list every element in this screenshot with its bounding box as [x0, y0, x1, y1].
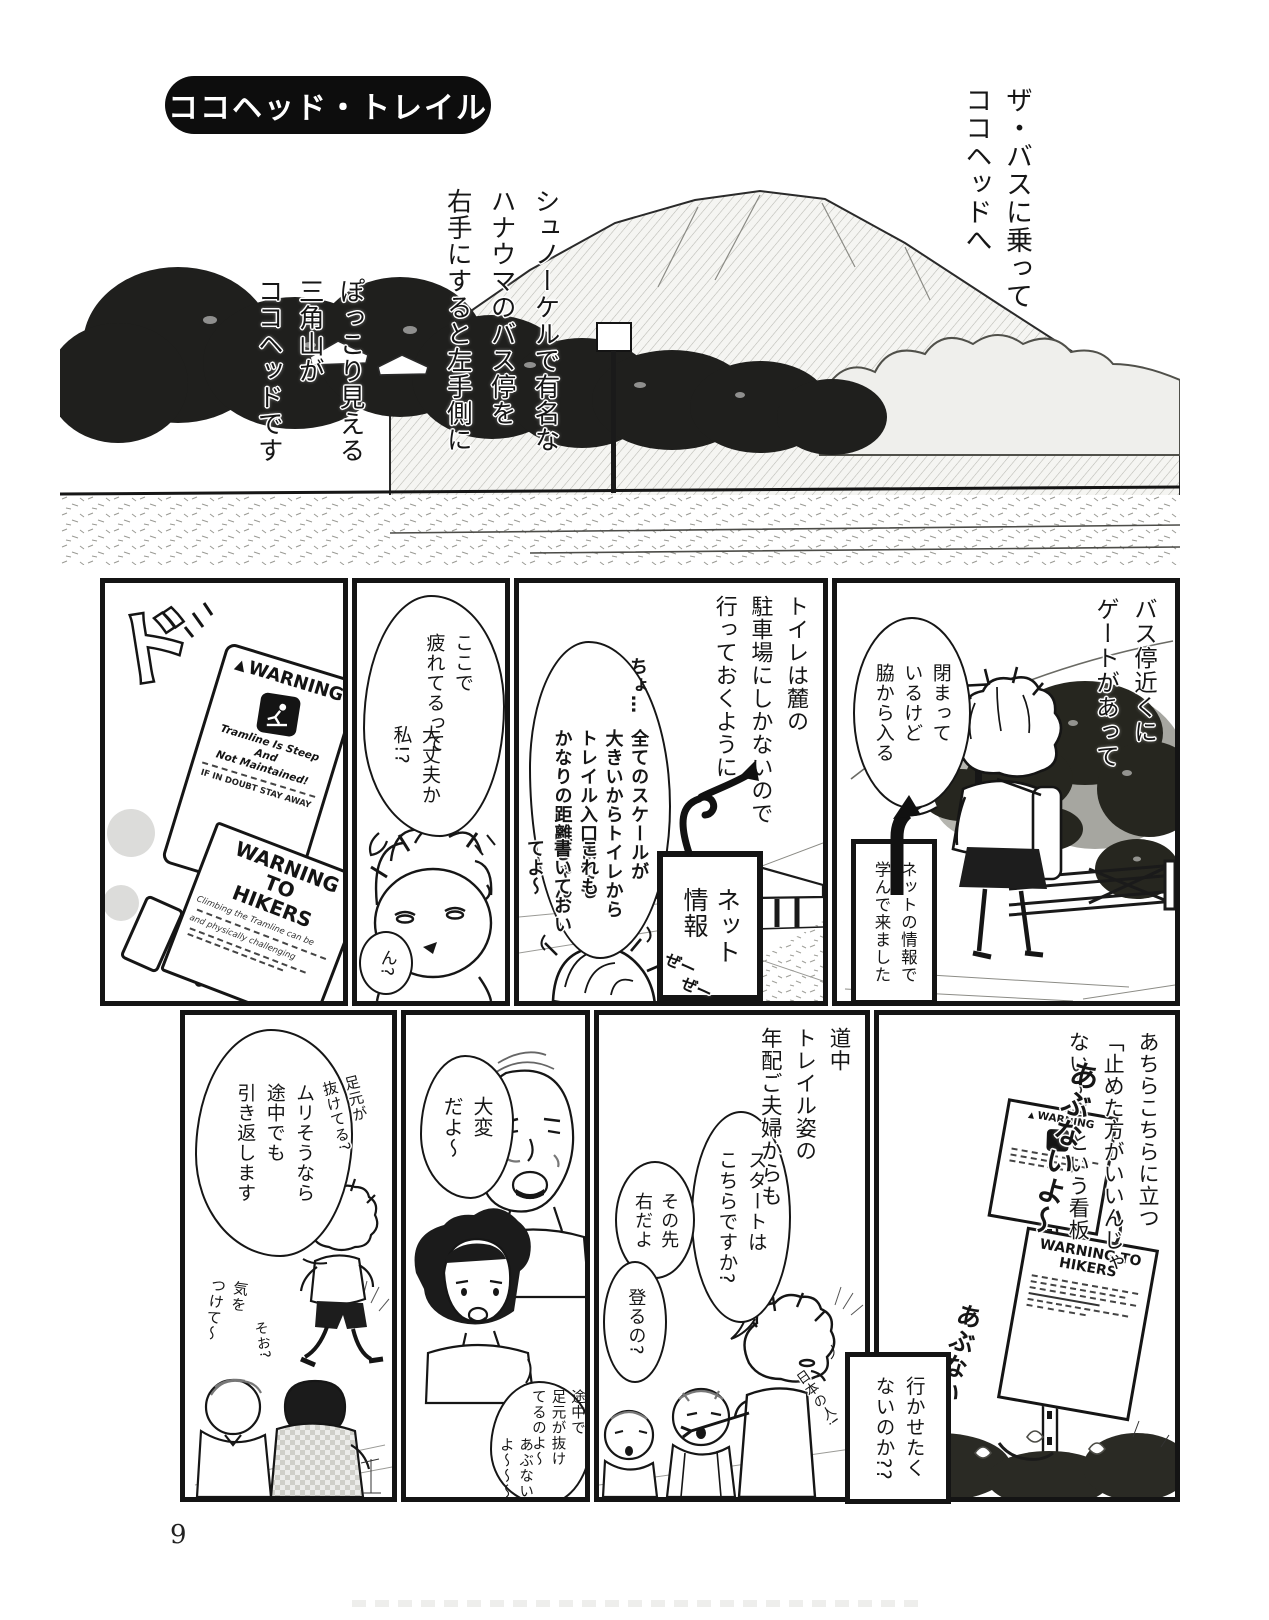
bubble-nukete-text: 途中で 足元が抜け てるのよ〜	[527, 1389, 586, 1467]
bubble-start-a-text: その先 右だよ	[629, 1192, 681, 1249]
panel-turnback: ムリそうなら 途中でも 引き返します 足元が 抜けてる? 気を つけて〜 そお?	[180, 1010, 397, 1502]
bubble-taihen-text: 大変 だよ〜	[437, 1096, 497, 1159]
panel-warning-signs: ド ▲ WARNING Tramline Is Steep And Not Ma…	[100, 578, 348, 1006]
elderly-man	[667, 1389, 735, 1497]
panel-gate: バス停近くに ゲートがあって 閉まって いるけど 脇から入る ネットの情報で 学…	[832, 578, 1180, 1006]
bystander-man	[603, 1411, 657, 1497]
page-number: 9	[170, 1520, 187, 1550]
sfx-do: ド	[105, 587, 205, 717]
curly-arrow	[669, 761, 769, 856]
bubble-climb-q-text: 登るの?	[621, 1288, 650, 1356]
chapter-title-badge: ココヘッド・トレイル	[165, 76, 491, 134]
old-man-back	[197, 1380, 271, 1497]
bubble-cho-text: ちょ…	[622, 657, 651, 714]
ikasetakunai-caption: 行かせたく ないのか??	[868, 1376, 928, 1481]
bubble-start-a: その先 右だよ	[615, 1161, 695, 1279]
manga-page: ココヘッド・トレイル	[0, 0, 1269, 1620]
bubble-gate: 閉まって いるけど 脇から入る	[853, 617, 971, 809]
intro-narration-hanauma: シュノーケルで有名な ハナウマのバス停を 右手にすると左手側に	[428, 188, 566, 538]
bubble-hm-text: ん?	[372, 949, 399, 977]
panel-tired: ここで 疲れてるって 大丈夫か 私!? ん?	[352, 578, 510, 1006]
koremo-text: これも 書いておい てよ〜	[521, 839, 602, 999]
intro-narration-kokohead: ぽっこり見える 三角山が ココヘッドです	[248, 278, 370, 540]
bottom-edge-artifact	[352, 1600, 918, 1607]
warning-triangle-icon: ▲	[233, 656, 248, 674]
bubble-climb-q: 登るの?	[603, 1261, 667, 1383]
bubble-turnback: ムリそうなら 途中でも 引き返します	[195, 1029, 353, 1257]
sfx-do-text: ド	[108, 595, 202, 699]
falling-hiker-pictogram	[256, 692, 302, 738]
panel-toilet-info: トイレは麓の 駐車場にしかないので 行っておくように ちょ… 全てのスケールが …	[514, 578, 828, 1006]
gate-narration: バス停近くに ゲートがあって	[1087, 597, 1163, 987]
old-woman-back	[271, 1381, 369, 1497]
intro-narration-bus: ザ・バスに乗って ココヘッドへ	[952, 86, 1036, 371]
up-arrow	[863, 795, 929, 895]
bubble-abunai-text: あぶない よ〜〜〜	[495, 1437, 534, 1499]
falling-hiker-glyph	[263, 699, 295, 731]
panel-start: 道中 トレイル姿の 年配ご夫婦からも スタートは こちらですか? その先 右だよ…	[594, 1010, 870, 1502]
panel-taihen: 大変 だよ〜 途中で 足元が抜け てるのよ〜 あぶない よ〜〜〜	[401, 1010, 590, 1502]
warning-triangle-icon: ▲	[1028, 1110, 1036, 1120]
net-info-box: ネット 情報	[657, 851, 763, 1001]
bubble-gate-text: 閉まって いるけど 脇から入る	[869, 663, 955, 763]
bubble-nukete: 途中で 足元が抜け てるのよ〜 あぶない よ〜〜〜	[490, 1381, 590, 1502]
bubble-tired: ここで 疲れてるって 大丈夫か 私!?	[363, 595, 505, 837]
ikasetakunai-caption-box: 行かせたく ないのか??	[845, 1352, 951, 1504]
chapter-title: ココヘッド・トレイル	[168, 83, 488, 127]
hand-kiotsukete: 気を つけて〜	[199, 1276, 252, 1346]
old-woman-face	[415, 1208, 534, 1403]
bubble-hm: ん?	[359, 931, 413, 995]
bubble-turnback-text: ムリそうなら 途中でも 引き返します	[230, 1083, 318, 1203]
bubble-taihen: 大変 だよ〜	[420, 1055, 514, 1199]
bubble-tired-sub: 大丈夫か 私!?	[387, 725, 444, 805]
